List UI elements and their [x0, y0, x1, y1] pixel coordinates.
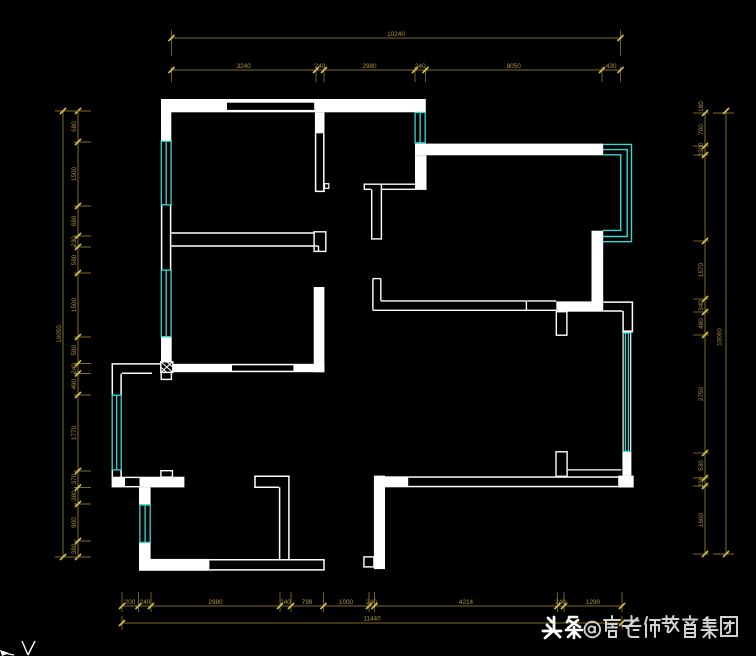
svg-text:1500: 1500: [71, 166, 78, 181]
svg-text:680: 680: [71, 215, 78, 226]
svg-text:1600: 1600: [698, 512, 705, 527]
svg-text:700: 700: [698, 124, 705, 135]
svg-text:2980: 2980: [362, 63, 377, 70]
svg-text:11440: 11440: [363, 616, 381, 623]
svg-text:798: 798: [302, 599, 313, 606]
svg-text:900: 900: [71, 517, 78, 528]
svg-text:10240: 10240: [387, 31, 405, 38]
svg-text:340: 340: [698, 300, 705, 311]
svg-text:680: 680: [71, 121, 78, 132]
svg-text:10060: 10060: [717, 328, 724, 346]
svg-text:530: 530: [698, 460, 705, 471]
svg-text:430: 430: [606, 63, 617, 70]
svg-text:240: 240: [71, 363, 78, 374]
svg-text:580: 580: [71, 254, 78, 265]
svg-text:240: 240: [366, 599, 377, 606]
svg-text:240: 240: [280, 599, 291, 606]
svg-text:1570: 1570: [698, 262, 705, 277]
svg-text:8050: 8050: [507, 63, 522, 70]
svg-text:380: 380: [71, 490, 78, 501]
svg-text:2750: 2750: [698, 386, 705, 401]
svg-text:240: 240: [415, 63, 426, 70]
svg-text:3240: 3240: [237, 63, 252, 70]
svg-text:240: 240: [315, 63, 326, 70]
svg-text:480: 480: [698, 318, 705, 329]
svg-text:370: 370: [71, 473, 78, 484]
svg-text:230: 230: [698, 476, 705, 487]
svg-text:2300: 2300: [698, 142, 705, 157]
svg-text:10050: 10050: [56, 325, 63, 343]
svg-text:200: 200: [125, 599, 136, 606]
svg-text:380: 380: [71, 543, 78, 554]
svg-text:180: 180: [698, 101, 705, 112]
svg-text:1770: 1770: [71, 425, 78, 440]
svg-text:240: 240: [555, 599, 566, 606]
svg-text:230: 230: [71, 236, 78, 247]
svg-text:240: 240: [140, 599, 151, 606]
svg-text:1290: 1290: [586, 599, 601, 606]
svg-text:580: 580: [71, 344, 78, 355]
svg-text:1500: 1500: [71, 297, 78, 312]
svg-text:1000: 1000: [339, 599, 354, 606]
svg-text:490: 490: [71, 378, 78, 389]
svg-text:4214: 4214: [459, 599, 474, 606]
svg-text:2980: 2980: [208, 599, 223, 606]
